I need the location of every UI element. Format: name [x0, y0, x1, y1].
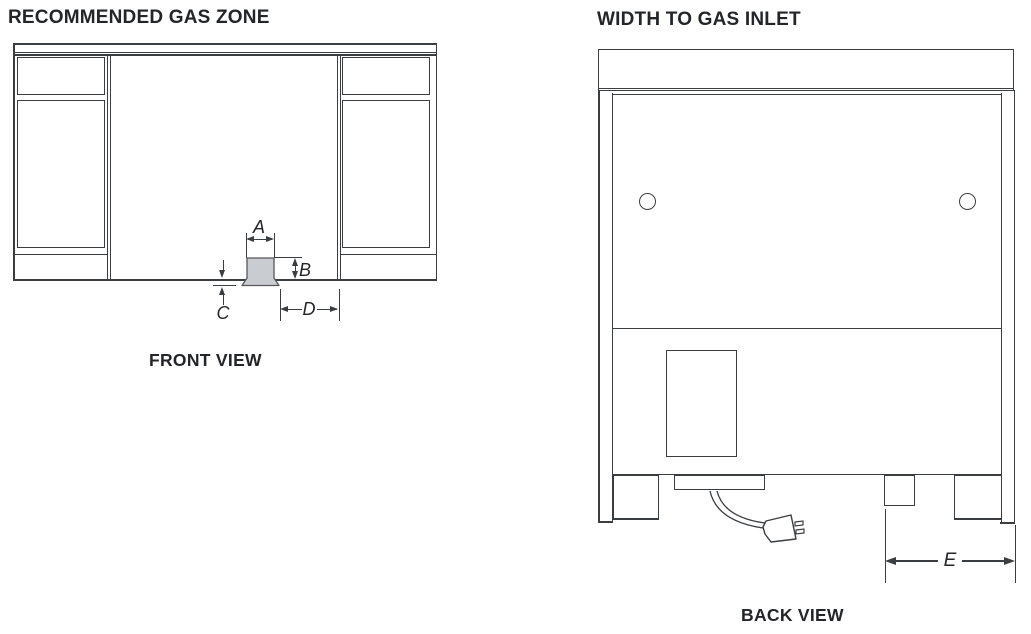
right-cabinet-outer-edge	[436, 43, 438, 280]
left-toekick-line	[13, 254, 107, 255]
dim-a-arrowhead-right-icon	[266, 236, 274, 242]
dim-e-extension-left	[885, 509, 886, 583]
dim-b-arrowhead-down-icon	[292, 271, 298, 279]
dim-label-d: D	[300, 300, 318, 318]
right-cabinet-door	[342, 100, 430, 248]
left-foot	[613, 475, 659, 520]
dim-e-arrowhead-right-icon	[1004, 557, 1015, 565]
right-side-outer-edge	[1014, 90, 1016, 523]
left-side-inner-line	[612, 93, 613, 522]
left-cabinet-outer-edge	[13, 43, 15, 280]
dim-e-extension-right	[1015, 525, 1016, 583]
right-toekick-line	[340, 254, 436, 255]
right-side-inner-line	[1001, 93, 1002, 523]
countertop-inner-line	[13, 52, 437, 53]
power-cord-icon	[700, 485, 810, 547]
backguard-panel	[598, 49, 1014, 91]
countertop-top-line	[13, 43, 437, 45]
dim-a-extension-right	[274, 233, 275, 258]
countertop-bottom-line	[13, 54, 437, 56]
right-side-bottom-cap	[1000, 522, 1015, 524]
back-panel-top-line	[612, 94, 1001, 95]
right-outer-foot	[954, 475, 1002, 520]
floor-baseline	[13, 279, 437, 281]
dim-d-arrowhead-left-icon	[280, 306, 288, 312]
dim-d-arrowhead-right-icon	[330, 306, 338, 312]
body-bottom-line	[612, 474, 1001, 476]
front-view-title: RECOMMENDED GAS ZONE	[8, 7, 270, 29]
left-cabinet-divider-line	[107, 54, 108, 280]
junction-box	[666, 350, 737, 457]
back-view-title: WIDTH TO GAS INLET	[597, 9, 801, 31]
right-cabinet-drawer	[342, 57, 430, 95]
left-side-outer-edge	[598, 90, 600, 522]
left-opening-edge-line	[110, 54, 111, 280]
dim-b-reference-line	[274, 257, 302, 258]
backguard-inner-line	[599, 88, 1013, 89]
right-mounting-hole	[959, 193, 976, 210]
dim-e-arrowhead-left-icon	[885, 557, 896, 565]
left-cabinet-door	[17, 100, 105, 248]
right-opening-edge-line	[337, 54, 338, 280]
plug-icon	[763, 515, 796, 542]
dim-label-a: A	[248, 218, 270, 236]
front-view-caption: FRONT VIEW	[149, 350, 262, 371]
right-cabinet-divider-line	[340, 54, 341, 280]
dim-c-arrowhead-down-icon	[219, 270, 225, 278]
gas-inlet-block-icon	[240, 255, 282, 287]
left-mounting-hole	[639, 193, 656, 210]
back-view-caption: BACK VIEW	[741, 605, 844, 626]
dim-d-extension-right	[339, 289, 340, 321]
installation-diagram: RECOMMENDED GAS ZONE A B C D	[0, 0, 1031, 634]
right-inner-foot	[884, 475, 915, 506]
dim-label-c: C	[214, 304, 232, 322]
left-cabinet-drawer	[17, 57, 105, 95]
dim-label-e: E	[940, 551, 960, 570]
dim-label-b: B	[299, 261, 311, 279]
back-panel-mid-line	[612, 328, 1001, 329]
left-side-bottom-cap	[598, 521, 613, 523]
